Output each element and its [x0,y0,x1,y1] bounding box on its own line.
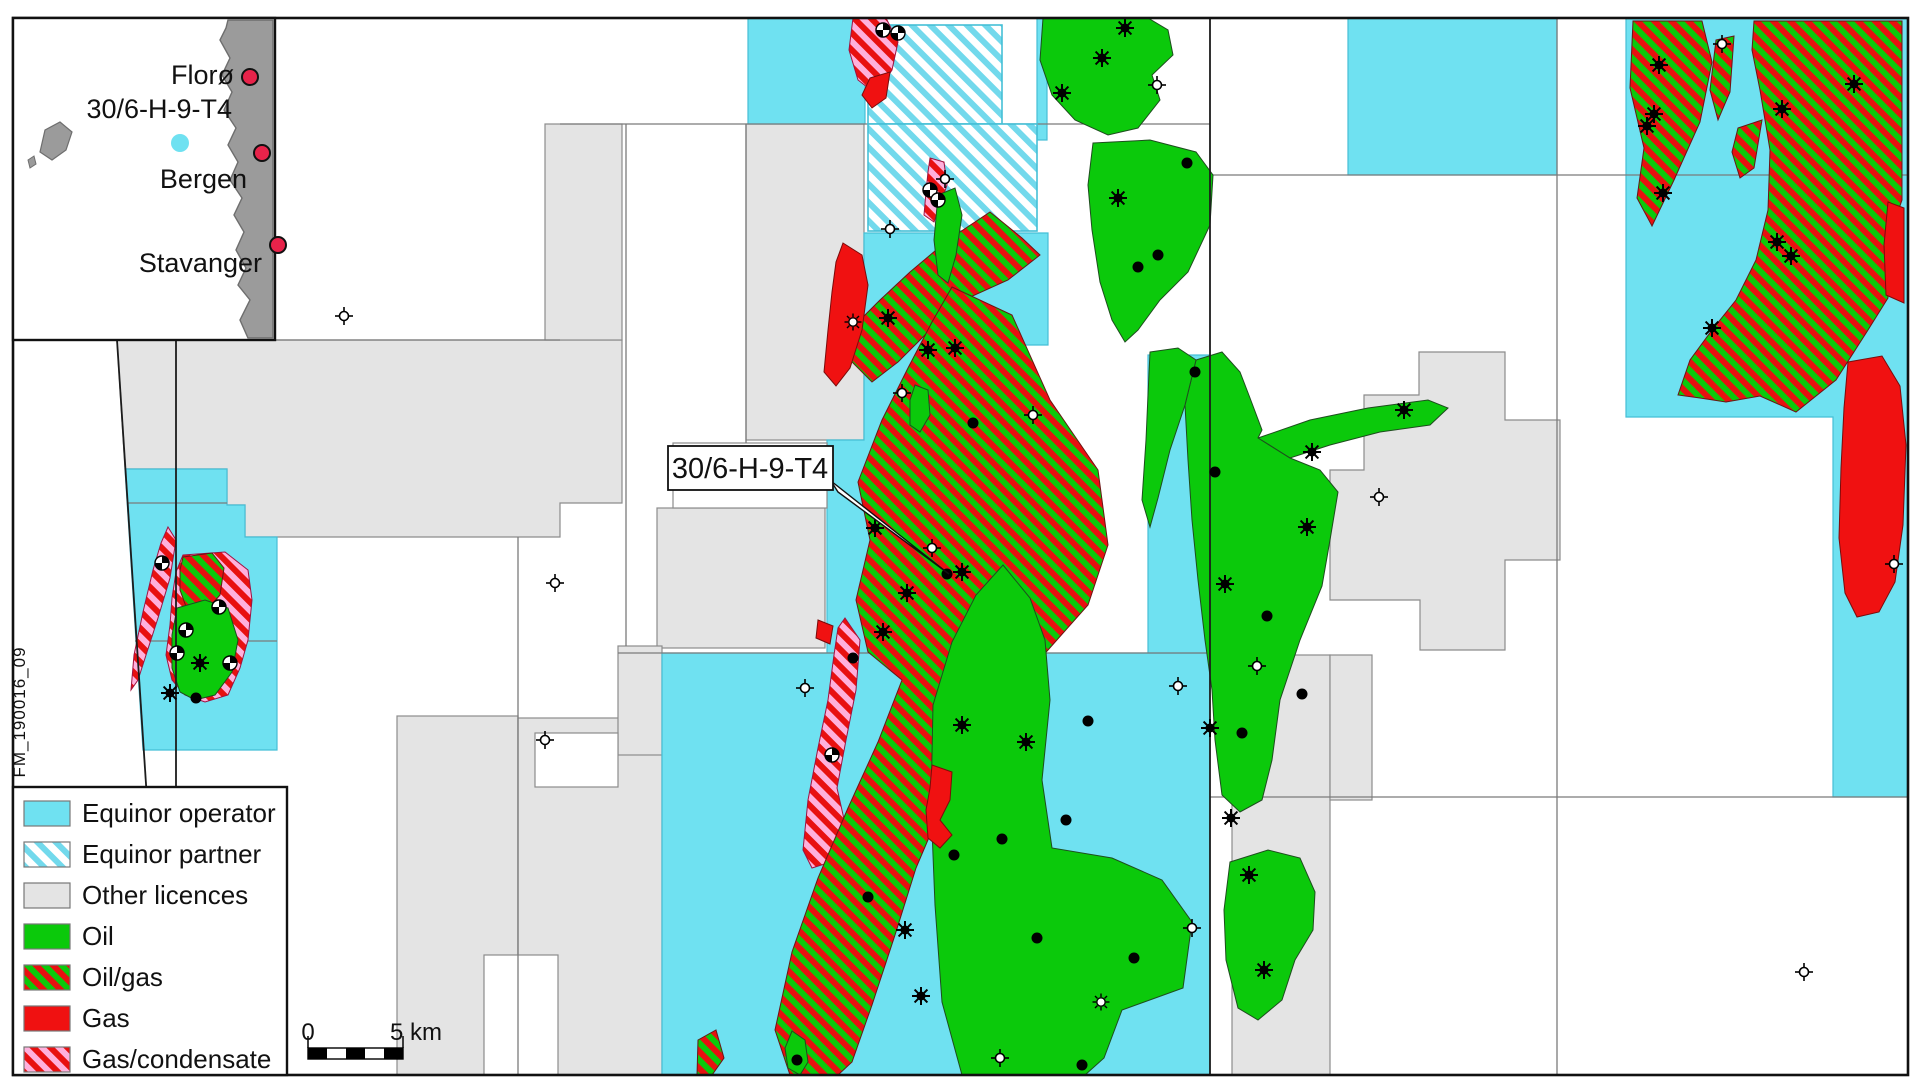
legend-item-oil: Oil [24,921,114,951]
legend-label: Equinor partner [82,839,262,869]
inset-well-marker [171,134,189,152]
legend-label: Gas [82,1003,130,1033]
swatch-gas-condensate [24,1047,70,1072]
legend-item-gas-condensate: Gas/condensate [24,1044,271,1074]
legend-label: Other licences [82,880,248,910]
inset-well-label: 30/6-H-9-T4 [86,94,232,124]
legend: Equinor operator Equinor partner Other l… [13,787,287,1075]
swatch-other-licences [24,883,70,908]
legend-label: Equinor operator [82,798,276,828]
city-marker-stavanger [270,237,286,253]
legend-label: Oil [82,921,114,951]
city-marker-floro [242,69,258,85]
scale-end-label: 5 km [390,1019,442,1046]
swatch-equinor-partner [24,842,70,867]
legend-item-other-licences: Other licences [24,880,248,910]
swatch-oil-gas [24,965,70,990]
licence-map: 30/6-H-9-T4 FM_190016_09 Florø 30/6-H-9-… [0,0,1920,1088]
swatch-oil [24,924,70,949]
callout-label: 30/6-H-9-T4 [672,453,828,485]
scale-segments [308,1048,403,1059]
city-marker-bergen [254,145,270,161]
legend-item-equinor-operator: Equinor operator [24,798,276,828]
legend-label: Gas/condensate [82,1044,271,1074]
city-label-stavanger: Stavanger [139,248,262,278]
swatch-gas [24,1006,70,1031]
city-label-floro: Florø [171,60,234,90]
swatch-equinor-operator [24,801,70,826]
city-label-bergen: Bergen [160,164,247,194]
field-gas [1884,202,1904,303]
field-gas [1839,356,1906,617]
main-map: 30/6-H-9-T4 FM_190016_09 [10,18,1908,1075]
legend-item-oil-gas: Oil/gas [24,962,163,992]
legend-label: Oil/gas [82,962,163,992]
white-licence-block-south [484,955,558,1075]
inset-map: Florø 30/6-H-9-T4 Bergen Stavanger [13,18,286,340]
legend-item-equinor-partner: Equinor partner [24,839,262,869]
